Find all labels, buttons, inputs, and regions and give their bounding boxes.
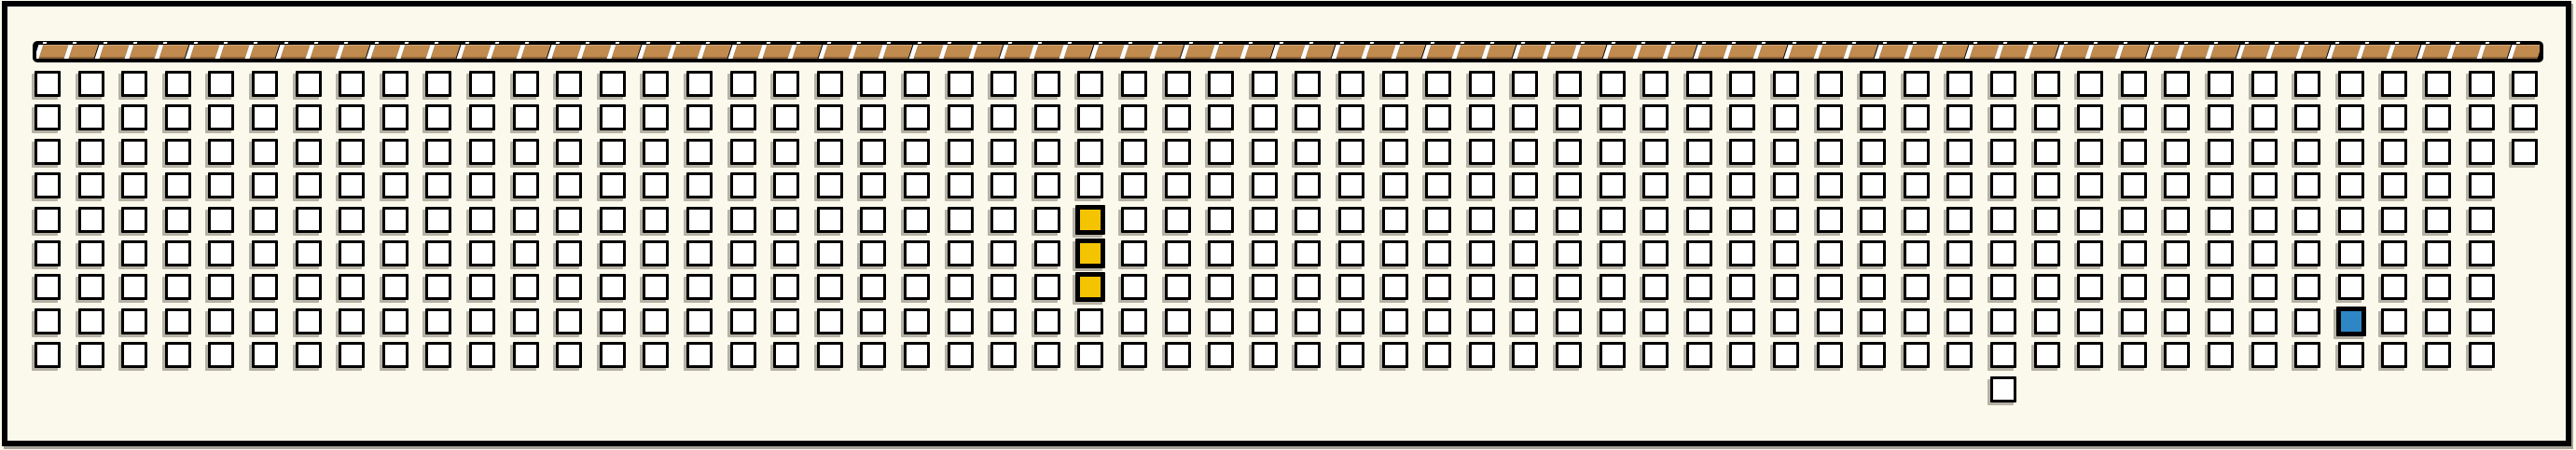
seat[interactable] bbox=[469, 71, 495, 97]
seat[interactable] bbox=[904, 207, 930, 233]
seat[interactable] bbox=[2425, 104, 2451, 130]
seat[interactable] bbox=[773, 240, 799, 266]
seat[interactable] bbox=[165, 71, 191, 97]
seat[interactable] bbox=[904, 71, 930, 97]
seat[interactable] bbox=[339, 172, 365, 198]
seat[interactable] bbox=[382, 207, 409, 233]
seat[interactable] bbox=[773, 207, 799, 233]
seat[interactable] bbox=[600, 71, 626, 97]
seat[interactable] bbox=[1946, 274, 1973, 300]
seat[interactable] bbox=[1338, 308, 1364, 334]
seat[interactable] bbox=[296, 308, 322, 334]
seat[interactable] bbox=[860, 172, 886, 198]
seat[interactable] bbox=[1034, 207, 1060, 233]
seat[interactable] bbox=[1556, 308, 1582, 334]
seat[interactable] bbox=[121, 139, 147, 165]
seat[interactable] bbox=[208, 207, 234, 233]
seat[interactable] bbox=[2121, 308, 2147, 334]
seat[interactable] bbox=[1686, 207, 1712, 233]
seat[interactable] bbox=[2164, 207, 2190, 233]
seat[interactable] bbox=[1729, 308, 1755, 334]
seat[interactable] bbox=[1817, 308, 1843, 334]
seat[interactable] bbox=[1600, 342, 1626, 368]
seat[interactable] bbox=[643, 274, 669, 300]
seat[interactable] bbox=[252, 104, 278, 130]
seat[interactable] bbox=[296, 342, 322, 368]
seat[interactable] bbox=[1425, 104, 1451, 130]
seat[interactable] bbox=[425, 207, 451, 233]
seat[interactable] bbox=[1077, 71, 1103, 97]
seat[interactable] bbox=[1165, 172, 1191, 198]
seat[interactable] bbox=[2294, 139, 2320, 165]
seat[interactable] bbox=[948, 274, 974, 300]
seat[interactable] bbox=[2294, 172, 2320, 198]
seat[interactable] bbox=[1208, 342, 1234, 368]
seat[interactable] bbox=[2251, 104, 2278, 130]
seat[interactable] bbox=[2338, 172, 2364, 198]
seat[interactable] bbox=[1556, 71, 1582, 97]
seat[interactable] bbox=[1077, 139, 1103, 165]
seat[interactable] bbox=[1425, 207, 1451, 233]
seat[interactable] bbox=[1077, 308, 1103, 334]
seat[interactable] bbox=[2425, 274, 2451, 300]
seat[interactable] bbox=[904, 308, 930, 334]
seat[interactable] bbox=[2121, 71, 2147, 97]
seat[interactable] bbox=[2034, 274, 2060, 300]
seat[interactable] bbox=[1121, 240, 1147, 266]
seat[interactable] bbox=[1382, 207, 1408, 233]
seat[interactable] bbox=[860, 71, 886, 97]
seat[interactable] bbox=[296, 274, 322, 300]
seat[interactable] bbox=[773, 172, 799, 198]
seat[interactable] bbox=[1817, 274, 1843, 300]
seat[interactable] bbox=[2294, 207, 2320, 233]
seat[interactable] bbox=[1512, 71, 1538, 97]
seat[interactable] bbox=[35, 308, 61, 334]
seat[interactable] bbox=[2381, 308, 2407, 334]
seat[interactable] bbox=[1469, 172, 1495, 198]
seat[interactable] bbox=[2164, 308, 2190, 334]
seat[interactable] bbox=[1642, 207, 1669, 233]
seat[interactable] bbox=[773, 71, 799, 97]
seat[interactable] bbox=[686, 342, 713, 368]
seat[interactable] bbox=[1165, 139, 1191, 165]
seat[interactable] bbox=[643, 342, 669, 368]
seat[interactable] bbox=[2512, 104, 2538, 130]
seat[interactable] bbox=[556, 104, 582, 130]
seat[interactable] bbox=[78, 71, 104, 97]
seat[interactable] bbox=[296, 139, 322, 165]
seat[interactable] bbox=[1946, 71, 1973, 97]
seat[interactable] bbox=[513, 240, 539, 266]
seat[interactable] bbox=[2469, 274, 2495, 300]
seat[interactable] bbox=[382, 71, 409, 97]
seat[interactable] bbox=[208, 104, 234, 130]
seat[interactable] bbox=[1773, 308, 1799, 334]
seat[interactable] bbox=[730, 172, 756, 198]
seat[interactable] bbox=[2034, 342, 2060, 368]
seat[interactable] bbox=[990, 308, 1017, 334]
seat[interactable] bbox=[1729, 172, 1755, 198]
seat[interactable] bbox=[1295, 342, 1321, 368]
seat[interactable] bbox=[2164, 342, 2190, 368]
seat[interactable] bbox=[2251, 172, 2278, 198]
seat[interactable] bbox=[1295, 274, 1321, 300]
seat[interactable] bbox=[1946, 104, 1973, 130]
seat[interactable] bbox=[1990, 71, 2016, 97]
seat[interactable] bbox=[2381, 71, 2407, 97]
seat[interactable] bbox=[2034, 207, 2060, 233]
seat[interactable] bbox=[2512, 139, 2538, 165]
seat[interactable] bbox=[1208, 240, 1234, 266]
seat[interactable] bbox=[2208, 139, 2234, 165]
seat[interactable] bbox=[469, 207, 495, 233]
seat[interactable] bbox=[425, 104, 451, 130]
seat[interactable] bbox=[1338, 342, 1364, 368]
seat[interactable] bbox=[730, 71, 756, 97]
seat[interactable] bbox=[165, 207, 191, 233]
seat[interactable] bbox=[513, 139, 539, 165]
seat[interactable] bbox=[1686, 274, 1712, 300]
seat[interactable] bbox=[2034, 240, 2060, 266]
seat[interactable] bbox=[730, 139, 756, 165]
seat[interactable] bbox=[860, 342, 886, 368]
seat[interactable] bbox=[425, 139, 451, 165]
seat[interactable] bbox=[600, 207, 626, 233]
seat[interactable] bbox=[1208, 139, 1234, 165]
seat[interactable] bbox=[2338, 139, 2364, 165]
seat[interactable] bbox=[1425, 172, 1451, 198]
seat[interactable] bbox=[1077, 342, 1103, 368]
seat[interactable] bbox=[1990, 376, 2016, 402]
seat[interactable] bbox=[1382, 308, 1408, 334]
seat[interactable] bbox=[2164, 172, 2190, 198]
seat[interactable] bbox=[1425, 342, 1451, 368]
seat[interactable] bbox=[730, 240, 756, 266]
seat[interactable] bbox=[1382, 342, 1408, 368]
seat[interactable] bbox=[165, 342, 191, 368]
seat[interactable] bbox=[35, 274, 61, 300]
seat[interactable] bbox=[556, 207, 582, 233]
seat[interactable] bbox=[1469, 342, 1495, 368]
seat[interactable] bbox=[296, 104, 322, 130]
seat[interactable] bbox=[1034, 274, 1060, 300]
seat[interactable] bbox=[730, 104, 756, 130]
seat[interactable] bbox=[1338, 139, 1364, 165]
seat[interactable] bbox=[35, 342, 61, 368]
seat[interactable] bbox=[78, 342, 104, 368]
seat-special[interactable] bbox=[2336, 307, 2366, 336]
seat[interactable] bbox=[296, 240, 322, 266]
seat[interactable] bbox=[165, 172, 191, 198]
seat[interactable] bbox=[860, 240, 886, 266]
seat[interactable] bbox=[339, 308, 365, 334]
seat[interactable] bbox=[1469, 139, 1495, 165]
seat[interactable] bbox=[948, 240, 974, 266]
seat[interactable] bbox=[2251, 71, 2278, 97]
seat[interactable] bbox=[252, 207, 278, 233]
seat[interactable] bbox=[1165, 104, 1191, 130]
seat[interactable] bbox=[121, 207, 147, 233]
seat[interactable] bbox=[990, 172, 1017, 198]
seat[interactable] bbox=[1469, 207, 1495, 233]
seat[interactable] bbox=[1904, 139, 1930, 165]
seat[interactable] bbox=[1034, 139, 1060, 165]
seat[interactable] bbox=[2077, 139, 2103, 165]
seat[interactable] bbox=[1729, 207, 1755, 233]
seat[interactable] bbox=[1034, 240, 1060, 266]
seat[interactable] bbox=[2251, 342, 2278, 368]
seat[interactable] bbox=[1946, 308, 1973, 334]
seat[interactable] bbox=[1425, 71, 1451, 97]
seat[interactable] bbox=[2208, 172, 2234, 198]
seat[interactable] bbox=[1382, 172, 1408, 198]
seat[interactable] bbox=[1469, 71, 1495, 97]
seat[interactable] bbox=[1252, 71, 1278, 97]
seat[interactable] bbox=[2425, 342, 2451, 368]
seat[interactable] bbox=[730, 207, 756, 233]
seat[interactable] bbox=[2294, 342, 2320, 368]
seat[interactable] bbox=[2077, 104, 2103, 130]
seat[interactable] bbox=[1425, 274, 1451, 300]
seat[interactable] bbox=[1729, 71, 1755, 97]
seat[interactable] bbox=[1469, 240, 1495, 266]
seat[interactable] bbox=[1729, 274, 1755, 300]
seat[interactable] bbox=[1600, 308, 1626, 334]
seat[interactable] bbox=[1556, 172, 1582, 198]
seat[interactable] bbox=[208, 172, 234, 198]
seat[interactable] bbox=[1642, 342, 1669, 368]
seat[interactable] bbox=[686, 308, 713, 334]
seat[interactable] bbox=[252, 240, 278, 266]
seat[interactable] bbox=[730, 342, 756, 368]
seat[interactable] bbox=[643, 104, 669, 130]
seat[interactable] bbox=[1121, 207, 1147, 233]
seat[interactable] bbox=[990, 71, 1017, 97]
seat[interactable] bbox=[1165, 274, 1191, 300]
seat[interactable] bbox=[643, 207, 669, 233]
seat[interactable] bbox=[600, 274, 626, 300]
seat[interactable] bbox=[1077, 172, 1103, 198]
seat[interactable] bbox=[78, 308, 104, 334]
seat[interactable] bbox=[1556, 207, 1582, 233]
seat[interactable] bbox=[1556, 240, 1582, 266]
seat[interactable] bbox=[2294, 71, 2320, 97]
seat[interactable] bbox=[2077, 172, 2103, 198]
seat[interactable] bbox=[1425, 139, 1451, 165]
seat[interactable] bbox=[513, 342, 539, 368]
seat[interactable] bbox=[1686, 240, 1712, 266]
seat[interactable] bbox=[600, 172, 626, 198]
seat[interactable] bbox=[1773, 139, 1799, 165]
seat[interactable] bbox=[469, 104, 495, 130]
seat[interactable] bbox=[1686, 172, 1712, 198]
seat[interactable] bbox=[121, 104, 147, 130]
seat[interactable] bbox=[2208, 71, 2234, 97]
seat[interactable] bbox=[2208, 207, 2234, 233]
seat[interactable] bbox=[1252, 240, 1278, 266]
seat[interactable] bbox=[1904, 172, 1930, 198]
seat[interactable] bbox=[252, 172, 278, 198]
seat[interactable] bbox=[425, 172, 451, 198]
seat[interactable] bbox=[1600, 71, 1626, 97]
seat[interactable] bbox=[773, 274, 799, 300]
seat[interactable] bbox=[35, 240, 61, 266]
seat[interactable] bbox=[513, 104, 539, 130]
seat[interactable] bbox=[773, 104, 799, 130]
seat[interactable] bbox=[1252, 172, 1278, 198]
seat[interactable] bbox=[2077, 274, 2103, 300]
seat[interactable] bbox=[121, 274, 147, 300]
seat[interactable] bbox=[904, 104, 930, 130]
seat[interactable] bbox=[773, 139, 799, 165]
seat[interactable] bbox=[817, 240, 843, 266]
seat[interactable] bbox=[730, 274, 756, 300]
seat[interactable] bbox=[1860, 308, 1886, 334]
seat[interactable] bbox=[2294, 104, 2320, 130]
seat[interactable] bbox=[1295, 139, 1321, 165]
seat[interactable] bbox=[2077, 240, 2103, 266]
seat[interactable] bbox=[1817, 207, 1843, 233]
seat[interactable] bbox=[2164, 71, 2190, 97]
seat[interactable] bbox=[1600, 104, 1626, 130]
seat[interactable] bbox=[556, 308, 582, 334]
seat[interactable] bbox=[2034, 71, 2060, 97]
seat[interactable] bbox=[1295, 308, 1321, 334]
seat[interactable] bbox=[1817, 172, 1843, 198]
seat[interactable] bbox=[1600, 139, 1626, 165]
seat[interactable] bbox=[469, 139, 495, 165]
seat[interactable] bbox=[1860, 342, 1886, 368]
seat[interactable] bbox=[990, 139, 1017, 165]
seat[interactable] bbox=[817, 274, 843, 300]
seat[interactable] bbox=[1686, 308, 1712, 334]
seat[interactable] bbox=[1990, 308, 2016, 334]
seat[interactable] bbox=[1990, 172, 2016, 198]
seat[interactable] bbox=[2208, 308, 2234, 334]
seat[interactable] bbox=[990, 104, 1017, 130]
seat[interactable] bbox=[1338, 172, 1364, 198]
seat[interactable] bbox=[904, 240, 930, 266]
seat[interactable] bbox=[78, 207, 104, 233]
seat[interactable] bbox=[296, 207, 322, 233]
seat[interactable] bbox=[556, 274, 582, 300]
seat[interactable] bbox=[2121, 207, 2147, 233]
seat[interactable] bbox=[1077, 104, 1103, 130]
seat[interactable] bbox=[990, 207, 1017, 233]
seat[interactable] bbox=[556, 139, 582, 165]
seat[interactable] bbox=[817, 139, 843, 165]
seat[interactable] bbox=[556, 71, 582, 97]
seat[interactable] bbox=[2425, 240, 2451, 266]
seat[interactable] bbox=[2425, 308, 2451, 334]
seat[interactable] bbox=[208, 240, 234, 266]
seat[interactable] bbox=[600, 308, 626, 334]
seat[interactable] bbox=[469, 342, 495, 368]
seat[interactable] bbox=[35, 104, 61, 130]
seat[interactable] bbox=[990, 274, 1017, 300]
seat[interactable] bbox=[339, 104, 365, 130]
seat[interactable] bbox=[78, 274, 104, 300]
seat[interactable] bbox=[1208, 308, 1234, 334]
seat[interactable] bbox=[1382, 104, 1408, 130]
seat[interactable] bbox=[1729, 104, 1755, 130]
seat[interactable] bbox=[208, 308, 234, 334]
seat[interactable] bbox=[2512, 71, 2538, 97]
seat[interactable] bbox=[1034, 342, 1060, 368]
seat[interactable] bbox=[2381, 172, 2407, 198]
seat[interactable] bbox=[1034, 308, 1060, 334]
seat[interactable] bbox=[1642, 274, 1669, 300]
seat[interactable] bbox=[904, 172, 930, 198]
seat[interactable] bbox=[1382, 139, 1408, 165]
seat[interactable] bbox=[1904, 308, 1930, 334]
seat[interactable] bbox=[860, 139, 886, 165]
seat[interactable] bbox=[860, 207, 886, 233]
seat[interactable] bbox=[2251, 274, 2278, 300]
seat[interactable] bbox=[1642, 139, 1669, 165]
seat[interactable] bbox=[600, 240, 626, 266]
seat[interactable] bbox=[2077, 207, 2103, 233]
seat[interactable] bbox=[425, 274, 451, 300]
seat[interactable] bbox=[1034, 172, 1060, 198]
seat[interactable] bbox=[1121, 308, 1147, 334]
seat[interactable] bbox=[1252, 139, 1278, 165]
seat[interactable] bbox=[1860, 274, 1886, 300]
seat[interactable] bbox=[2381, 104, 2407, 130]
seat[interactable] bbox=[78, 104, 104, 130]
seat[interactable] bbox=[773, 308, 799, 334]
seat[interactable] bbox=[1425, 308, 1451, 334]
seat[interactable] bbox=[2077, 342, 2103, 368]
seat[interactable] bbox=[643, 139, 669, 165]
seat[interactable] bbox=[817, 172, 843, 198]
seat[interactable] bbox=[208, 71, 234, 97]
seat[interactable] bbox=[1512, 308, 1538, 334]
seat[interactable] bbox=[2381, 207, 2407, 233]
seat[interactable] bbox=[1208, 207, 1234, 233]
seat[interactable] bbox=[773, 342, 799, 368]
seat[interactable] bbox=[860, 308, 886, 334]
seat[interactable] bbox=[1338, 104, 1364, 130]
seat[interactable] bbox=[1817, 342, 1843, 368]
seat[interactable] bbox=[686, 104, 713, 130]
seat[interactable] bbox=[1904, 104, 1930, 130]
seat[interactable] bbox=[948, 71, 974, 97]
seat[interactable] bbox=[556, 240, 582, 266]
seat[interactable] bbox=[1729, 240, 1755, 266]
seat[interactable] bbox=[1904, 71, 1930, 97]
seat[interactable] bbox=[817, 308, 843, 334]
seat[interactable] bbox=[2294, 240, 2320, 266]
seat[interactable] bbox=[1512, 139, 1538, 165]
seat[interactable] bbox=[1469, 104, 1495, 130]
seat[interactable] bbox=[643, 172, 669, 198]
seat[interactable] bbox=[165, 240, 191, 266]
seat[interactable] bbox=[1425, 240, 1451, 266]
seat[interactable] bbox=[339, 71, 365, 97]
seat[interactable] bbox=[1252, 342, 1278, 368]
seat[interactable] bbox=[686, 274, 713, 300]
seat[interactable] bbox=[1642, 240, 1669, 266]
seat[interactable] bbox=[2208, 274, 2234, 300]
seat[interactable] bbox=[513, 71, 539, 97]
seat[interactable] bbox=[252, 139, 278, 165]
seat[interactable] bbox=[1338, 207, 1364, 233]
seat[interactable] bbox=[1512, 104, 1538, 130]
seat[interactable] bbox=[1121, 139, 1147, 165]
seat[interactable] bbox=[600, 104, 626, 130]
